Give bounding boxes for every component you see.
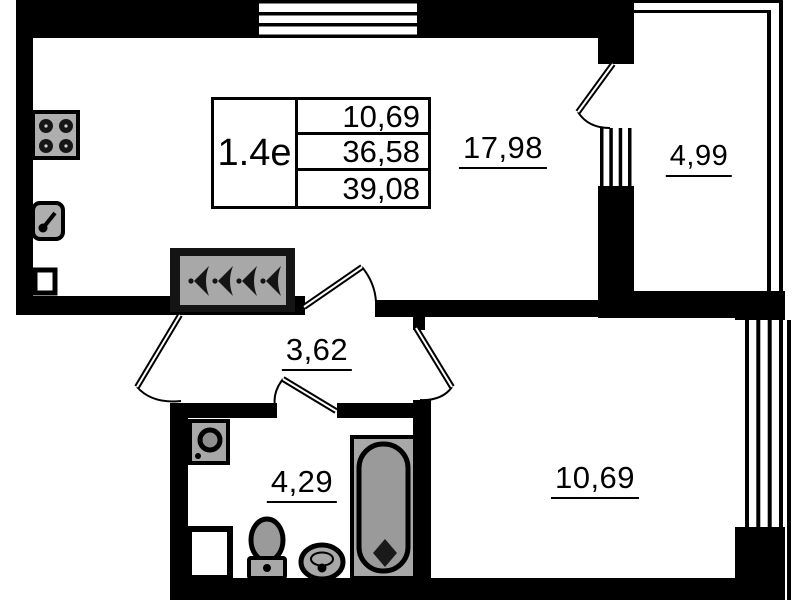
window-icon <box>609 128 613 188</box>
floor-plan-drawing <box>0 0 799 600</box>
door-swing-icon <box>137 387 181 401</box>
railing-right-inner <box>767 10 771 293</box>
facade-line <box>787 320 791 600</box>
room-label-bedroom: 10,69 <box>551 462 639 499</box>
title-block-value-total: 39,08 <box>298 171 428 206</box>
wall-bottom <box>170 578 785 600</box>
wall-divider-right <box>375 300 634 317</box>
living-room-door <box>304 267 376 307</box>
title-block-value-living: 10,69 <box>298 100 428 135</box>
door-swing-icon <box>578 112 610 128</box>
bedroom-door <box>416 328 452 400</box>
window-icon <box>259 35 417 39</box>
washing-machine-icon <box>190 421 228 463</box>
door-swing-icon <box>420 387 452 400</box>
room-label-living-kitchen: 17,98 <box>459 132 547 169</box>
room-label-balcony: 4,99 <box>666 142 732 177</box>
window-icon <box>259 23 417 27</box>
wardrobe <box>170 248 295 312</box>
wall-balcony-door-stub <box>598 38 634 64</box>
door-leaf-gap <box>283 379 336 411</box>
wall-bathroom-top-left <box>170 403 277 418</box>
wall-living-balcony <box>598 186 634 318</box>
window-icon <box>259 12 417 16</box>
bathroom-door <box>275 379 336 411</box>
bathroom-niche <box>189 529 230 578</box>
door-leaf-gap <box>416 328 452 387</box>
window-icon <box>259 0 417 4</box>
wall-top-left <box>16 0 259 38</box>
window-icon <box>600 128 604 188</box>
railing-top-outer <box>634 0 783 3</box>
floor-plan: 17,98 4,99 3,62 4,29 10,69 1.4e 10,69 36… <box>0 0 799 600</box>
wall-left <box>16 0 33 315</box>
balcony-door <box>578 64 613 128</box>
room-label-hallway: 3,62 <box>282 334 352 371</box>
window-icon <box>756 320 760 527</box>
title-block: 1.4e 10,69 36,58 39,08 <box>211 97 431 209</box>
railing-right-outer <box>779 0 783 293</box>
washbasin-icon <box>301 545 343 579</box>
kitchen-sink-icon <box>33 203 63 239</box>
wall-bathroom-left <box>170 403 188 600</box>
window-icon <box>768 320 772 527</box>
window-icon <box>628 128 632 188</box>
wall-right-block-top <box>735 291 785 320</box>
toilet-icon <box>249 519 285 578</box>
wall-top-right <box>417 0 634 38</box>
door-swing-icon <box>275 379 283 411</box>
window-top <box>259 0 417 38</box>
wall-bathroom-top-right <box>337 403 425 418</box>
window-icon <box>619 128 623 188</box>
room-label-bathroom: 4,29 <box>267 466 337 503</box>
railing-top-inner <box>634 10 771 13</box>
duct-shaft <box>35 270 55 293</box>
unit-number: 1.4e <box>214 100 298 206</box>
window-living-balcony <box>600 128 632 188</box>
bathtub-icon <box>352 437 415 578</box>
title-block-value-area: 36,58 <box>298 135 428 170</box>
door-swing-icon <box>362 267 376 302</box>
wall-under-balcony <box>634 291 735 318</box>
window-icon <box>745 320 749 527</box>
window-bedroom-right <box>745 320 783 527</box>
door-leaf-gap <box>578 64 613 112</box>
window-icon <box>779 320 783 527</box>
stove-icon <box>33 112 78 158</box>
door-leaf-gap <box>137 315 180 387</box>
door-leaf-gap <box>304 267 362 307</box>
entrance-door <box>137 315 181 401</box>
